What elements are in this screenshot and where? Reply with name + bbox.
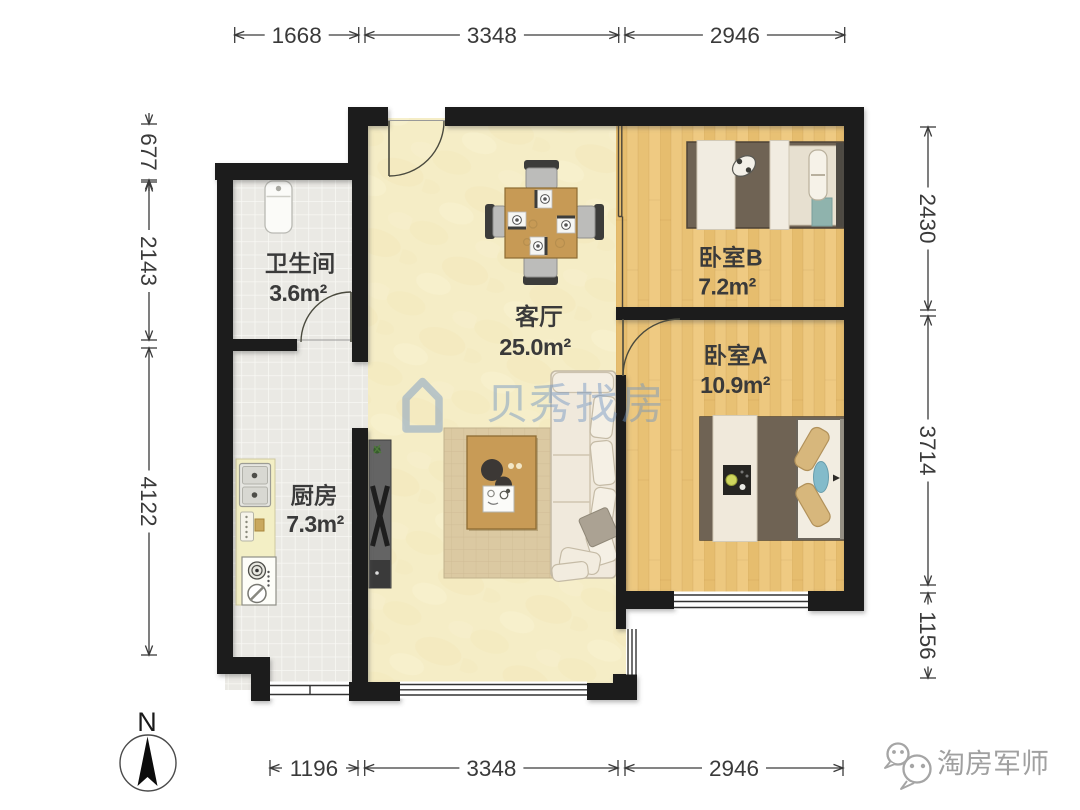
svg-text:10.9m²: 10.9m² [700,372,771,398]
svg-text:2946: 2946 [709,756,759,781]
svg-text:3714: 3714 [915,425,940,475]
svg-text:677: 677 [136,133,161,171]
svg-text:3348: 3348 [466,756,516,781]
svg-text:2430: 2430 [915,193,940,243]
svg-text:2143: 2143 [136,236,161,286]
svg-text:1196: 1196 [290,756,338,781]
svg-text:2946: 2946 [710,23,760,48]
svg-text:N: N [137,707,157,737]
svg-text:25.0m²: 25.0m² [499,334,571,360]
svg-text:3348: 3348 [467,23,517,48]
svg-text:1668: 1668 [272,23,322,48]
svg-text:4122: 4122 [136,476,161,526]
svg-text:7.2m²: 7.2m² [698,274,756,300]
svg-text:B: B [746,244,763,270]
svg-text:A: A [751,342,768,368]
svg-text:3.6m²: 3.6m² [269,280,327,306]
svg-text:1156: 1156 [915,611,940,659]
svg-text:7.3m²: 7.3m² [286,511,344,537]
